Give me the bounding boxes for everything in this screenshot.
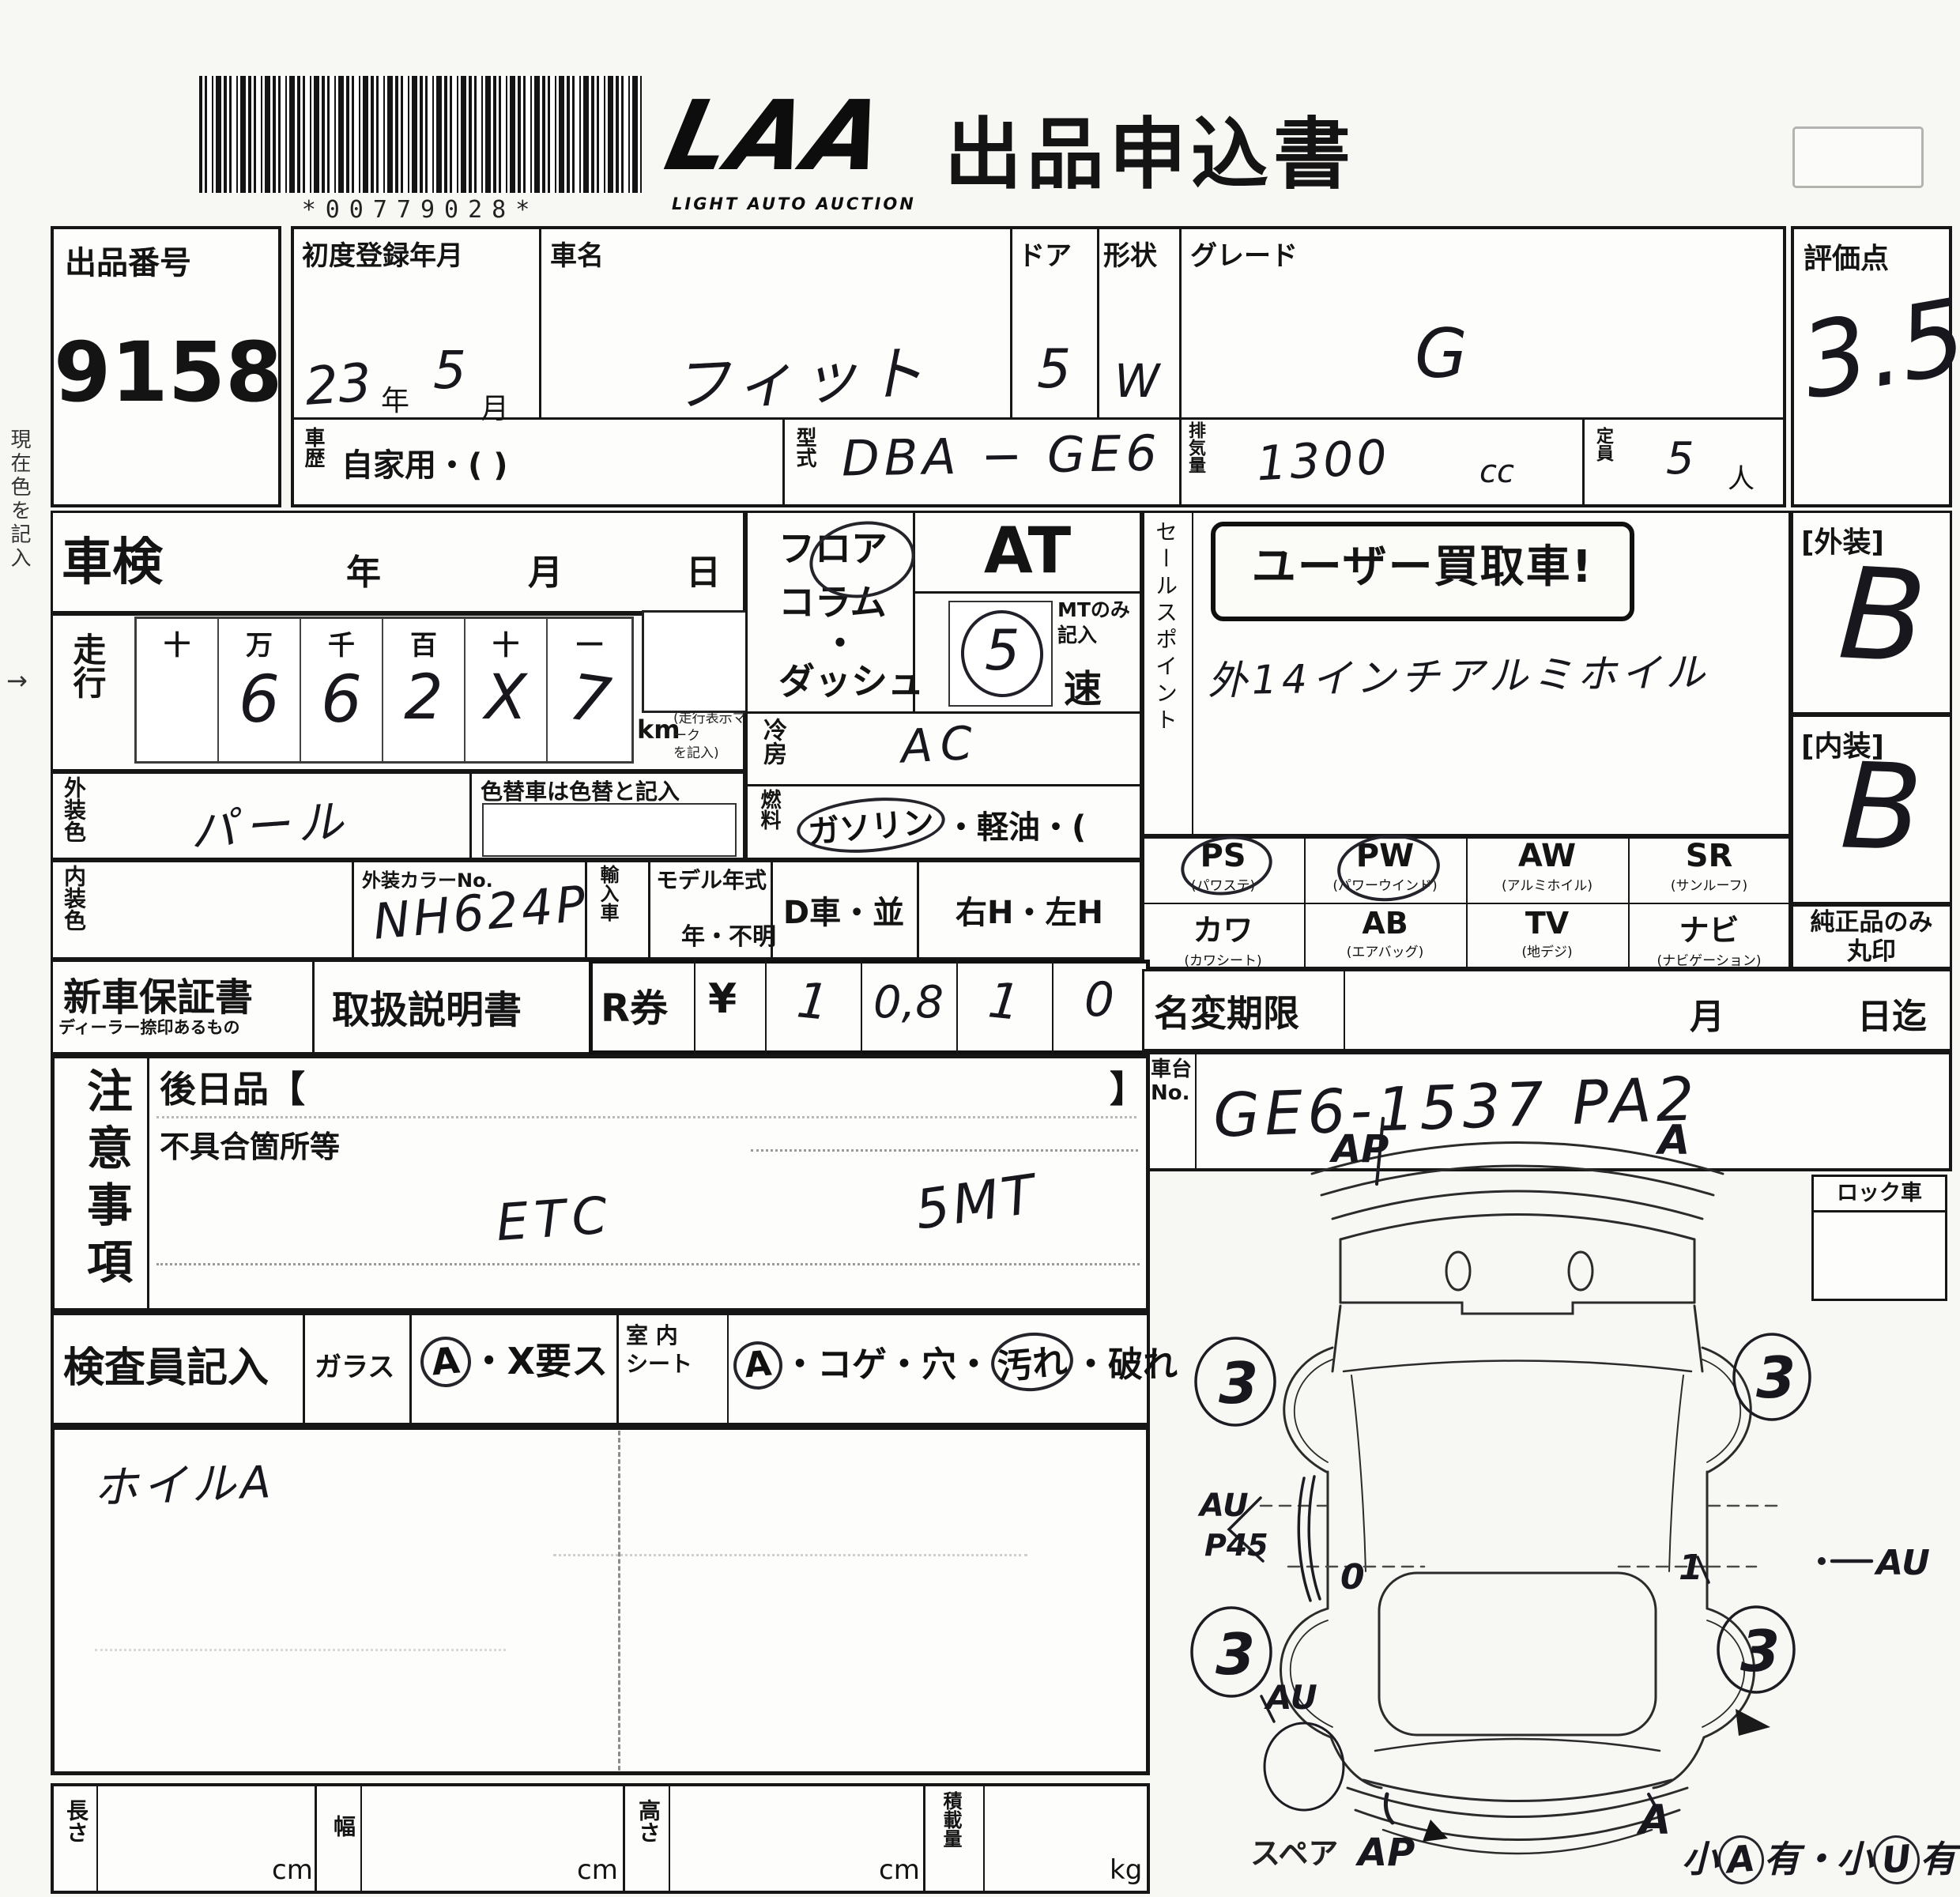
diagram-left-note-au: AU xyxy=(1197,1488,1249,1524)
inspector-label: 検査員記入 xyxy=(63,1334,269,1394)
car-diagram: AP A 3 3 3 3 AU P45 AU 0 1 AU AP A スペア xyxy=(1185,1099,1960,1897)
barcode-text: *00779028* xyxy=(199,196,642,224)
diagram-spare-label: スペア xyxy=(1250,1836,1338,1871)
door-value: 5 xyxy=(1037,338,1071,401)
diagram-wheel-rl: 3 xyxy=(1216,1621,1255,1688)
history-label: 車歴 xyxy=(299,427,328,468)
inspector-seat-circled-dirty: 汚れ xyxy=(989,1329,1076,1395)
r-ticket-label: R券 xyxy=(601,977,668,1032)
model-year-label: モデル年式 xyxy=(656,863,767,895)
mileage-col-label: 一 xyxy=(548,624,631,662)
mileage-digit: 6 xyxy=(301,662,382,737)
evaluation-box: 評価点 3.5 xyxy=(1791,226,1952,507)
genuine-parts-box: 純正品のみ 丸印 xyxy=(1791,904,1952,969)
model-code-label: 型式 xyxy=(790,427,820,468)
fuel-rest: ・軽油・( xyxy=(945,809,1086,846)
first-reg-year: 23 xyxy=(303,352,373,417)
aircon-label: 冷房 xyxy=(755,718,790,765)
user-buyback-stamp-text: ユーザー買取車! xyxy=(1216,526,1630,609)
mileage-digit: 2 xyxy=(383,662,464,734)
inspector-glass-rest: ・X要ス xyxy=(471,1340,608,1382)
equip-navi-code: ナビ xyxy=(1679,913,1739,948)
mt-speed-unit: 速 xyxy=(1064,658,1102,713)
height-unit: cm xyxy=(879,1854,920,1886)
equip-ab-code: AB xyxy=(1362,906,1408,941)
height-label: 高さ xyxy=(632,1799,664,1843)
exterior-color-label: 外装色 xyxy=(62,776,85,843)
small-note-p1: 小 xyxy=(1682,1838,1718,1880)
small-note-circled-u: U xyxy=(1871,1834,1922,1887)
evaluation-value: 3.5 xyxy=(1792,280,1954,423)
displacement-label: 排気量 xyxy=(1185,421,1204,473)
mileage-col-label: 十 xyxy=(137,624,217,662)
r-ticket-digit-2: 0,8 xyxy=(861,977,956,1028)
inspector-seat-label: 室 内 シート xyxy=(626,1322,692,1378)
page-title: 出品申込書 xyxy=(944,92,1355,204)
small-damage-note: 小A有・小U有 xyxy=(1682,1831,1956,1884)
later-items-close: 】 xyxy=(1110,1061,1146,1113)
corner-stamp-box xyxy=(1792,126,1924,188)
capacity-value: 5 xyxy=(1666,433,1694,485)
evaluation-label: 評価点 xyxy=(1804,236,1889,277)
diagram-wheel-fl: 3 xyxy=(1219,1350,1258,1416)
shaken-month-unit: 月 xyxy=(528,544,563,594)
diagram-rear-a: A xyxy=(1636,1797,1671,1844)
warranty-label: 新車保証書 xyxy=(63,966,253,1021)
diagram-rear-ap: AP xyxy=(1355,1831,1415,1875)
car-name-label: 車名 xyxy=(550,234,604,273)
interior-rating-box: [内装] B xyxy=(1791,715,1952,904)
inspector-glass-circled: A xyxy=(418,1334,473,1389)
name-change-label: 名変期限 xyxy=(1154,985,1299,1037)
width-unit: cm xyxy=(577,1854,618,1886)
interior-rating-value: B xyxy=(1838,737,1924,877)
laa-logo-sub: LIGHT AUTO AUCTION xyxy=(672,194,972,213)
margin-note: 現在色を記入 xyxy=(5,428,34,571)
manual-label: 取扱説明書 xyxy=(332,979,522,1034)
shape-value: W xyxy=(1114,354,1159,408)
equip-sr: SR(サンルーフ) xyxy=(1628,838,1790,894)
shaken-year-unit: 年 xyxy=(346,544,381,594)
exterior-rating-box: [外装] B xyxy=(1791,511,1952,715)
first-reg-month: 5 xyxy=(433,340,466,401)
length-label: 長さ xyxy=(60,1799,92,1843)
r-ticket-digit-4: 0 xyxy=(1052,972,1147,1028)
margin-arrow: → xyxy=(6,666,28,696)
r-ticket-yen: ¥ xyxy=(708,975,737,1023)
aircon-value: AC xyxy=(899,715,982,773)
equip-navi: ナビ(ナビゲーション) xyxy=(1628,906,1790,969)
shaken-day-unit: 日 xyxy=(686,544,721,594)
mt-speed-value: 5 xyxy=(985,618,1020,683)
inspector-free-divider xyxy=(618,1431,620,1771)
mileage-label: 走行 xyxy=(63,632,111,699)
warranty-sub: ディーラー捺印あるもの xyxy=(58,1015,240,1039)
color-change-note: 色替車は色替と記入 xyxy=(481,775,680,806)
interior-color-label: 内装色 xyxy=(62,865,85,931)
name-change-month-unit: 月 xyxy=(1690,988,1724,1039)
r-ticket-digit-1: 1 xyxy=(763,967,864,1035)
inspector-seat-mid: ・コゲ・穴・ xyxy=(782,1344,991,1385)
mileage-col-label: 万 xyxy=(219,624,300,662)
exterior-color-value: パール xyxy=(187,783,352,861)
notes-hand-etc: ETC xyxy=(495,1186,616,1253)
equip-aw-code: AW xyxy=(1518,838,1576,874)
capacity-unit: 人 xyxy=(1728,457,1755,496)
equip-tv-code: TV xyxy=(1525,906,1569,941)
barcode xyxy=(199,76,642,193)
fuel-circled-option: ガソリン xyxy=(794,792,947,858)
mileage-col-label: 十 xyxy=(465,624,546,662)
name-change-until: 日迄 xyxy=(1857,988,1927,1039)
diagram-front-left-mark: AP xyxy=(1329,1127,1389,1171)
diagram-mark-1: 1 xyxy=(1679,1548,1703,1588)
length-unit: cm xyxy=(272,1854,313,1886)
first-reg-year-unit: 年 xyxy=(381,378,409,419)
shaken-label: 車検 xyxy=(62,522,163,594)
equip-sr-code: SR xyxy=(1686,838,1733,874)
d-car-option: D車・並 xyxy=(771,887,917,933)
color-change-box xyxy=(482,803,737,857)
mt-note: MTのみ 記入 xyxy=(1057,598,1130,648)
displacement-value: 1300 xyxy=(1255,430,1391,492)
diagram-rear-left-au: AU xyxy=(1264,1678,1317,1717)
grade-value: G xyxy=(1415,315,1468,394)
mileage-digit: 7 xyxy=(564,660,614,738)
inspector-glass-options: A・X要ス xyxy=(420,1333,608,1387)
width-label: 幅 xyxy=(327,1815,359,1837)
lot-number-value: 9158 xyxy=(54,324,278,421)
equip-kawa-sub: (カワシート) xyxy=(1142,949,1304,969)
diagram-wheel-rr: 3 xyxy=(1740,1618,1780,1684)
laa-logo: LAA xyxy=(657,89,948,191)
handle-option: 右H・左H xyxy=(917,887,1142,933)
diagram-mark-0: 0 xyxy=(1340,1557,1365,1597)
shift-position-l4: ダッシュ xyxy=(778,653,924,705)
inspector-glass-label: ガラス xyxy=(315,1345,394,1384)
auction-sheet: *00779028* LAA LIGHT AUTO AUCTION 出品申込書 … xyxy=(0,0,1960,1897)
load-label: 積載量 xyxy=(940,1791,961,1848)
mileage-digit: 6 xyxy=(219,662,300,737)
diagram-left-note-p45: P45 xyxy=(1204,1528,1268,1563)
mileage-stamp-box xyxy=(642,610,748,713)
equip-navi-sub: (ナビゲーション) xyxy=(1628,949,1790,969)
capacity-label: 定員 xyxy=(1590,427,1615,462)
fuel-label: 燃料 xyxy=(755,789,784,830)
equip-kawa: カワ(カワシート) xyxy=(1142,906,1304,969)
sales-point-note: 外14インチアルミホイル xyxy=(1207,640,1709,706)
mileage-col-label: 百 xyxy=(383,624,464,662)
defects-label: 不具合箇所等 xyxy=(160,1122,340,1166)
mileage-digit: X xyxy=(465,662,546,734)
equip-ab: AB(エアバッグ) xyxy=(1304,906,1466,960)
diagram-right-note-au: AU xyxy=(1874,1543,1930,1583)
at-value: AT xyxy=(913,514,1142,587)
small-note-p3: 有 xyxy=(1920,1838,1956,1880)
exterior-rating-value: B xyxy=(1835,539,1929,691)
equip-kawa-code: カワ xyxy=(1193,913,1253,948)
later-items-label: 後日品【 xyxy=(160,1061,305,1113)
shape-label: 形状 xyxy=(1103,234,1157,273)
small-note-p2: 有・小 xyxy=(1764,1838,1873,1880)
small-note-circled-a: A xyxy=(1716,1834,1766,1887)
user-buyback-stamp: ユーザー買取車! xyxy=(1211,522,1634,621)
equip-sr-sub: (サンルーフ) xyxy=(1628,874,1790,894)
inspector-seat-end: ・破れ xyxy=(1073,1344,1178,1385)
equip-ab-sub: (エアバッグ) xyxy=(1304,941,1466,960)
history-value: 自家用・( ) xyxy=(341,439,508,485)
chassis-label: 車台 No. xyxy=(1151,1058,1192,1105)
notes-label: 注意事項 xyxy=(73,1067,139,1295)
car-name-value: フィット xyxy=(669,326,932,424)
load-unit: kg xyxy=(1110,1854,1142,1886)
inspector-seat-options: A・コゲ・穴・汚れ・破れ xyxy=(733,1333,1178,1391)
lot-number-box: 出品番号 9158 xyxy=(51,226,281,507)
first-reg-month-unit: 月 xyxy=(481,386,509,427)
diagram-wheel-fr: 3 xyxy=(1756,1344,1796,1411)
lot-number-label: 出品番号 xyxy=(65,237,191,283)
equip-aw: AW(アルミホイル) xyxy=(1466,838,1628,894)
first-reg-label: 初度登録年月 xyxy=(302,234,463,273)
inspector-hand-note: ホイルA xyxy=(92,1446,277,1517)
sales-point-label: セールスポイント xyxy=(1149,520,1181,735)
diagram-front-right-mark: A xyxy=(1655,1117,1690,1164)
displacement-unit: cc xyxy=(1479,454,1514,490)
mileage-unit-note: (走行表示マーク を記入) xyxy=(673,710,752,762)
model-code-value: DBA − GE6 xyxy=(841,424,1162,487)
equip-tv: TV(地デジ) xyxy=(1466,906,1628,960)
r-ticket-digit-3: 1 xyxy=(954,967,1055,1035)
import-label: 輸入車 xyxy=(594,865,622,922)
genuine-parts-note: 純正品のみ 丸印 xyxy=(1793,908,1950,967)
equip-aw-sub: (アルミホイル) xyxy=(1466,874,1628,894)
model-year-value: 年・不明 xyxy=(681,917,776,952)
door-label: ドア xyxy=(1018,234,1072,273)
equip-tv-sub: (地デジ) xyxy=(1466,941,1628,960)
mileage-col-label: 千 xyxy=(301,624,382,662)
inspector-seat-circled-a: A xyxy=(731,1339,784,1391)
mileage-grid: 十 万6 千6 百2 十X 一7 xyxy=(134,617,634,764)
grade-label: グレード xyxy=(1190,234,1298,273)
